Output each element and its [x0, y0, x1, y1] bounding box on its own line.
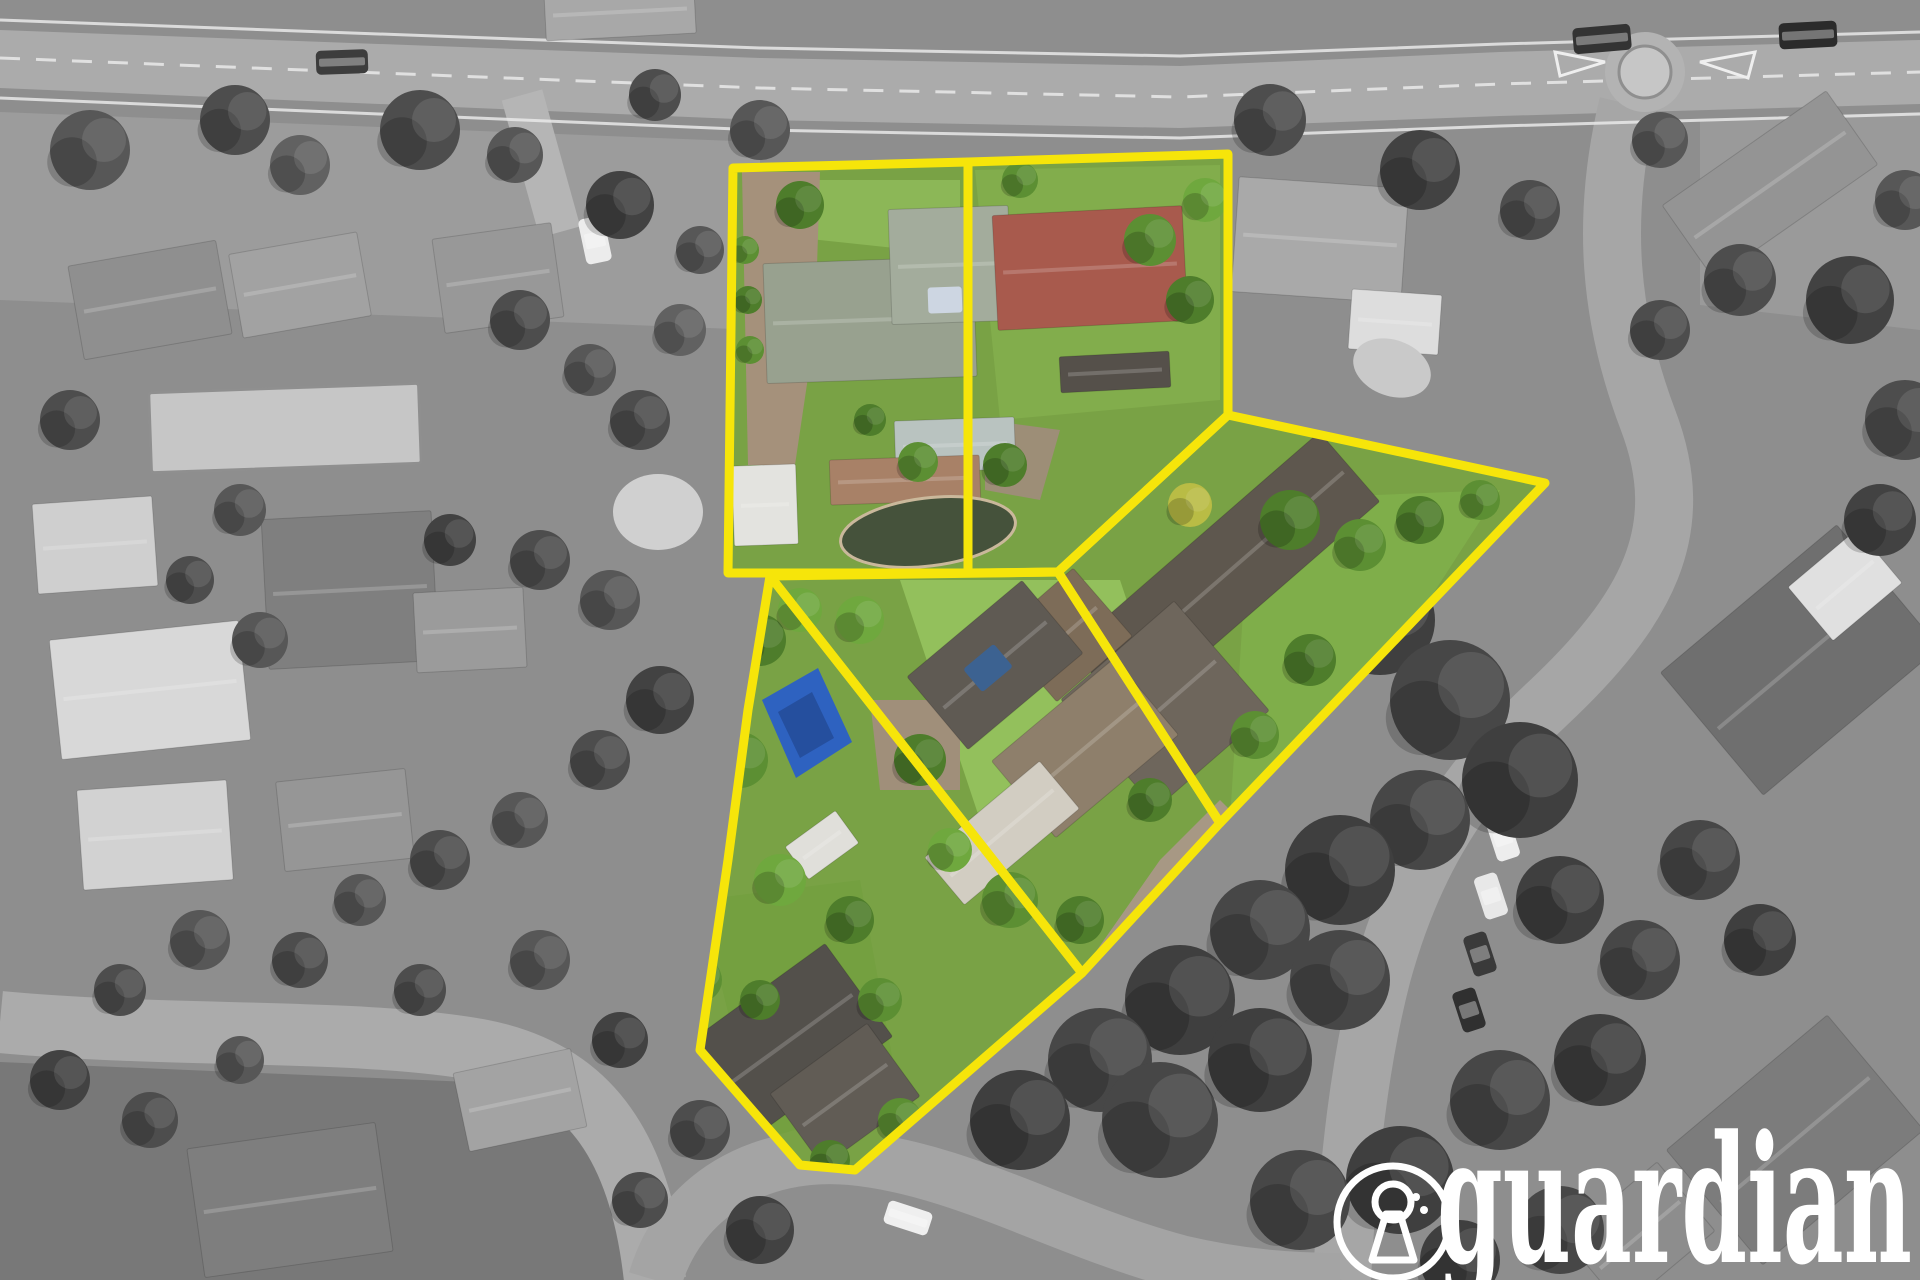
tree-highlight: [1145, 219, 1174, 248]
tree-highlight: [694, 1106, 727, 1139]
tree-highlight: [1185, 281, 1211, 307]
tree-highlight: [675, 309, 704, 338]
tree-highlight: [509, 133, 540, 164]
tree-highlight: [1250, 716, 1276, 742]
tree-highlight: [1284, 496, 1317, 529]
tree-highlight: [867, 407, 885, 425]
tree-highlight: [1201, 182, 1225, 206]
tree-highlight: [534, 536, 567, 569]
tree-highlight: [1632, 928, 1676, 972]
tree-highlight: [1753, 911, 1793, 951]
tree-highlight: [412, 98, 456, 142]
tree-highlight: [1148, 1074, 1212, 1138]
tree-highlight: [1415, 501, 1441, 527]
tree-highlight: [914, 446, 936, 468]
tree-highlight: [754, 106, 787, 139]
tree-highlight: [775, 859, 804, 888]
detail-rect: [928, 286, 963, 313]
gray-house-roof-group: [187, 1122, 393, 1277]
tree-highlight: [534, 936, 567, 969]
tree-highlight: [845, 901, 871, 927]
tree-highlight: [1329, 826, 1390, 887]
tree-highlight: [514, 798, 545, 829]
tree-highlight: [876, 982, 900, 1006]
tree-highlight: [742, 239, 757, 254]
tree-highlight: [1146, 782, 1170, 806]
tree-highlight: [254, 618, 285, 649]
aerial-photo-svg: guardian: [0, 0, 1920, 1280]
tree-highlight: [855, 601, 881, 627]
tree-highlight: [54, 1056, 87, 1089]
tree-highlight: [747, 339, 762, 354]
real-estate-aerial-photo: guardian: [0, 0, 1920, 1280]
tree-highlight: [1010, 1080, 1065, 1135]
car-group: [316, 49, 369, 75]
tree-highlight: [753, 1203, 790, 1240]
tree-highlight: [115, 969, 144, 998]
car-group: [1778, 21, 1837, 50]
guardian-wordmark: guardian: [1437, 1097, 1912, 1280]
tree-highlight: [355, 879, 384, 908]
tree-highlight: [613, 178, 650, 215]
tree-highlight: [1654, 118, 1685, 149]
tree-highlight: [604, 576, 637, 609]
tree-highlight: [1508, 734, 1572, 798]
tree-highlight: [1873, 491, 1913, 531]
tree-highlight: [614, 1018, 645, 1049]
tree-highlight: [1330, 940, 1385, 995]
tree-highlight: [1075, 901, 1101, 927]
tree-highlight: [294, 938, 325, 969]
tree-highlight: [82, 118, 126, 162]
roundabout-island: [1619, 46, 1671, 98]
lot-house-roof-group: [732, 464, 799, 546]
tree-highlight: [1476, 484, 1498, 506]
lot-house-roof-group: [1059, 351, 1171, 393]
lot-house-roof-ridge: [741, 504, 789, 506]
gray-house-roof-group: [276, 768, 415, 871]
pool: [613, 474, 703, 550]
tree-highlight: [1591, 1023, 1642, 1074]
tree-highlight: [745, 289, 760, 304]
tree-highlight: [1001, 447, 1025, 471]
tree-highlight: [1186, 487, 1210, 511]
tree-highlight: [1551, 865, 1599, 913]
tree-highlight: [185, 561, 211, 587]
tree-highlight: [653, 673, 690, 710]
gray-house-roof-group: [32, 496, 158, 594]
tree-highlight: [415, 969, 444, 998]
tree-highlight: [1524, 186, 1557, 219]
tree-highlight: [1263, 91, 1303, 131]
tree-highlight: [756, 984, 778, 1006]
tree-highlight: [795, 186, 821, 212]
tree-highlight: [634, 1178, 665, 1209]
tree-highlight: [585, 349, 614, 378]
tree-highlight: [434, 836, 467, 869]
tree-highlight: [1412, 138, 1456, 182]
tree-highlight: [634, 396, 667, 429]
tree-highlight: [1733, 251, 1773, 291]
tree-highlight: [826, 1144, 848, 1166]
car-group: [1572, 24, 1632, 55]
tree-highlight: [1692, 828, 1736, 872]
tree-highlight: [695, 231, 721, 257]
tree-highlight: [445, 519, 474, 548]
tree-highlight: [1250, 890, 1305, 945]
tree-highlight: [144, 1098, 175, 1129]
tree-highlight: [194, 916, 227, 949]
tree-highlight: [235, 489, 264, 518]
tree-highlight: [228, 92, 267, 131]
gray-house-roof-group: [261, 511, 439, 670]
tree-highlight: [1169, 956, 1230, 1017]
tree-highlight: [1305, 639, 1334, 668]
gray-house-roof-group: [77, 780, 234, 890]
logo-dot: [1412, 1193, 1420, 1201]
tree-highlight: [1355, 524, 1384, 553]
gray-house-roof-group: [413, 587, 527, 673]
tree-highlight: [294, 141, 327, 174]
tree-highlight: [1438, 652, 1504, 718]
tree-highlight: [1841, 265, 1889, 313]
tree-highlight: [650, 74, 679, 103]
tree-highlight: [594, 736, 627, 769]
car-windshield: [319, 57, 365, 67]
gray-house-roof-group: [49, 620, 251, 759]
tree-highlight: [946, 832, 970, 856]
tree-highlight: [64, 396, 97, 429]
tree-highlight: [1410, 780, 1465, 835]
tree-highlight: [235, 1041, 261, 1067]
tree-highlight: [1654, 306, 1687, 339]
tree-highlight: [514, 296, 547, 329]
tree-highlight: [1250, 1018, 1307, 1075]
logo-dot: [1420, 1206, 1428, 1214]
detail-rect: [149, 383, 422, 472]
tree-highlight: [1016, 166, 1036, 186]
